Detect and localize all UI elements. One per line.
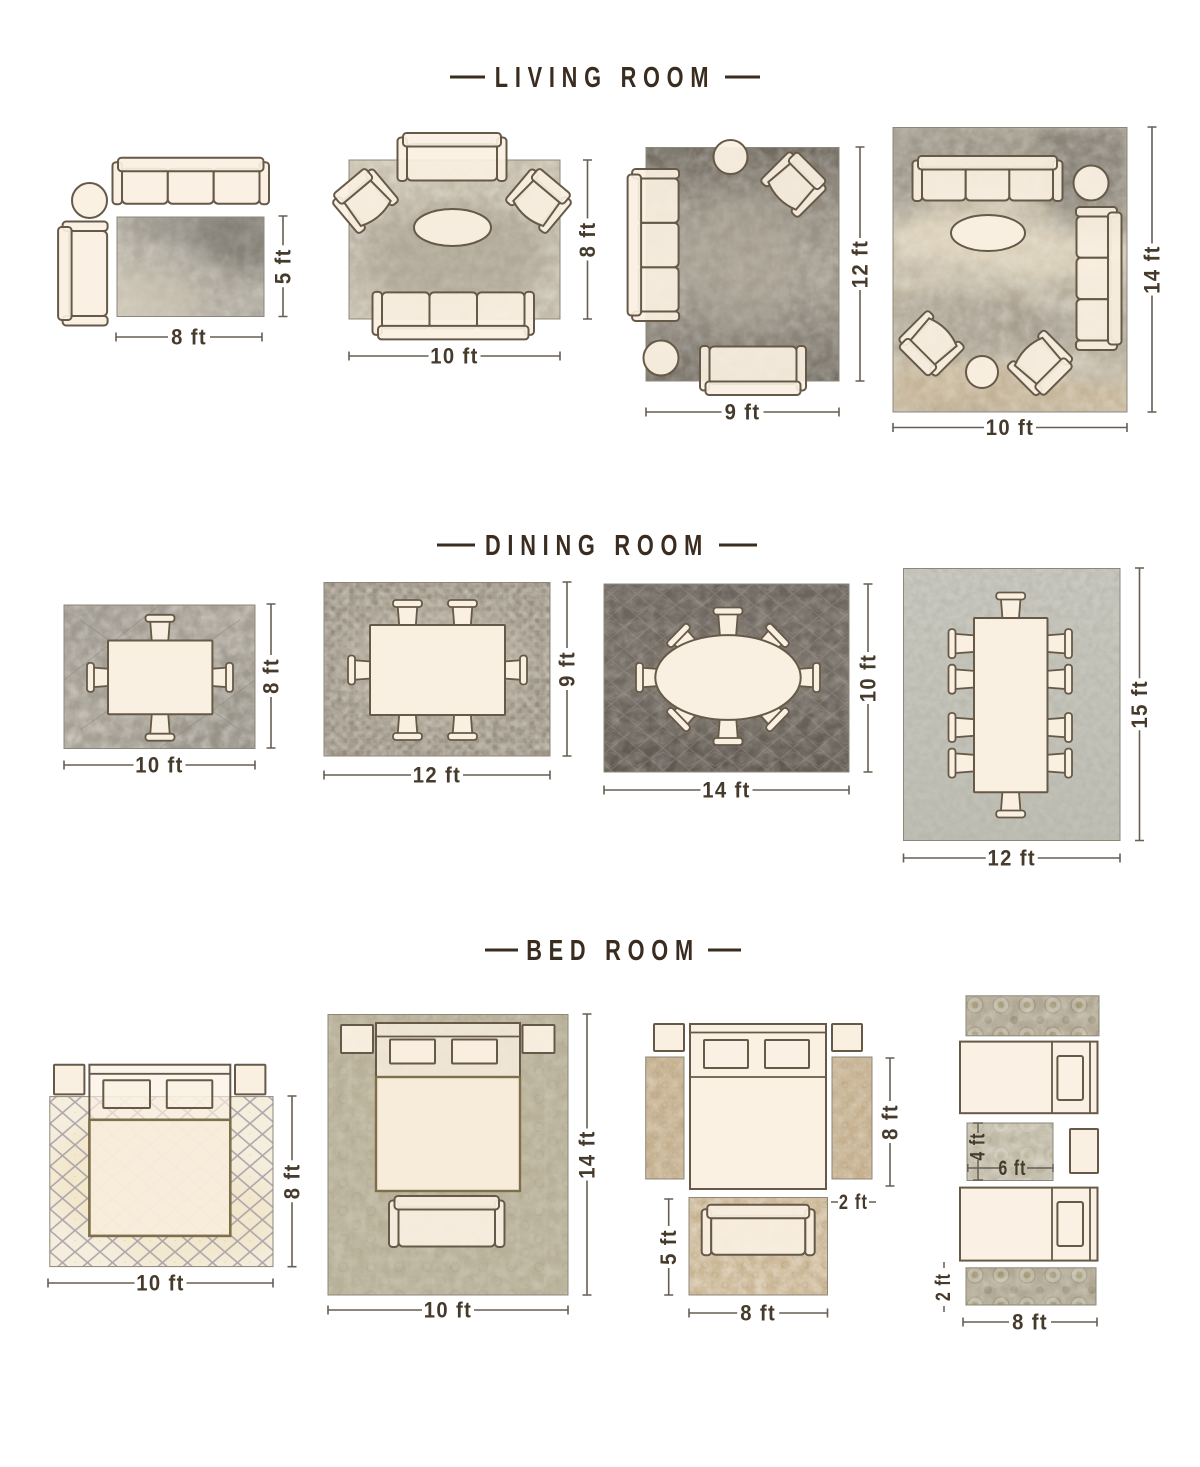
svg-text:8 ft: 8 ft — [171, 326, 207, 350]
svg-text:2 ft: 2 ft — [931, 1273, 955, 1301]
svg-text:10 ft: 10 ft — [857, 654, 881, 703]
svg-text:8 ft: 8 ft — [576, 222, 600, 258]
svg-text:10 ft: 10 ft — [424, 1299, 473, 1323]
svg-text:14 ft: 14 ft — [1141, 245, 1165, 294]
svg-text:2 ft: 2 ft — [839, 1190, 868, 1213]
svg-text:8 ft: 8 ft — [740, 1302, 776, 1326]
svg-text:14 ft: 14 ft — [576, 1130, 600, 1179]
svg-text:5 ft: 5 ft — [272, 248, 296, 284]
svg-text:8 ft: 8 ft — [879, 1104, 903, 1140]
svg-text:12 ft: 12 ft — [988, 847, 1037, 871]
svg-text:DINING ROOM: DINING ROOM — [485, 530, 709, 562]
svg-text:6 ft: 6 ft — [998, 1156, 1026, 1180]
svg-text:LIVING ROOM: LIVING ROOM — [495, 62, 715, 94]
svg-text:8 ft: 8 ft — [1012, 1311, 1048, 1335]
svg-text:8 ft: 8 ft — [260, 658, 284, 694]
svg-text:10 ft: 10 ft — [136, 1272, 185, 1296]
svg-text:14 ft: 14 ft — [702, 779, 751, 803]
svg-text:15 ft: 15 ft — [1128, 680, 1152, 729]
svg-text:BED ROOM: BED ROOM — [526, 935, 700, 967]
svg-text:9 ft: 9 ft — [725, 401, 761, 425]
svg-text:10 ft: 10 ft — [430, 345, 479, 369]
svg-text:9 ft: 9 ft — [556, 651, 580, 687]
svg-text:4 ft: 4 ft — [965, 1132, 989, 1160]
svg-text:12 ft: 12 ft — [413, 764, 462, 788]
svg-text:8 ft: 8 ft — [281, 1163, 305, 1199]
svg-text:10 ft: 10 ft — [135, 754, 184, 778]
svg-text:5 ft: 5 ft — [657, 1229, 681, 1265]
svg-text:10 ft: 10 ft — [986, 416, 1035, 440]
svg-text:12 ft: 12 ft — [849, 240, 873, 289]
